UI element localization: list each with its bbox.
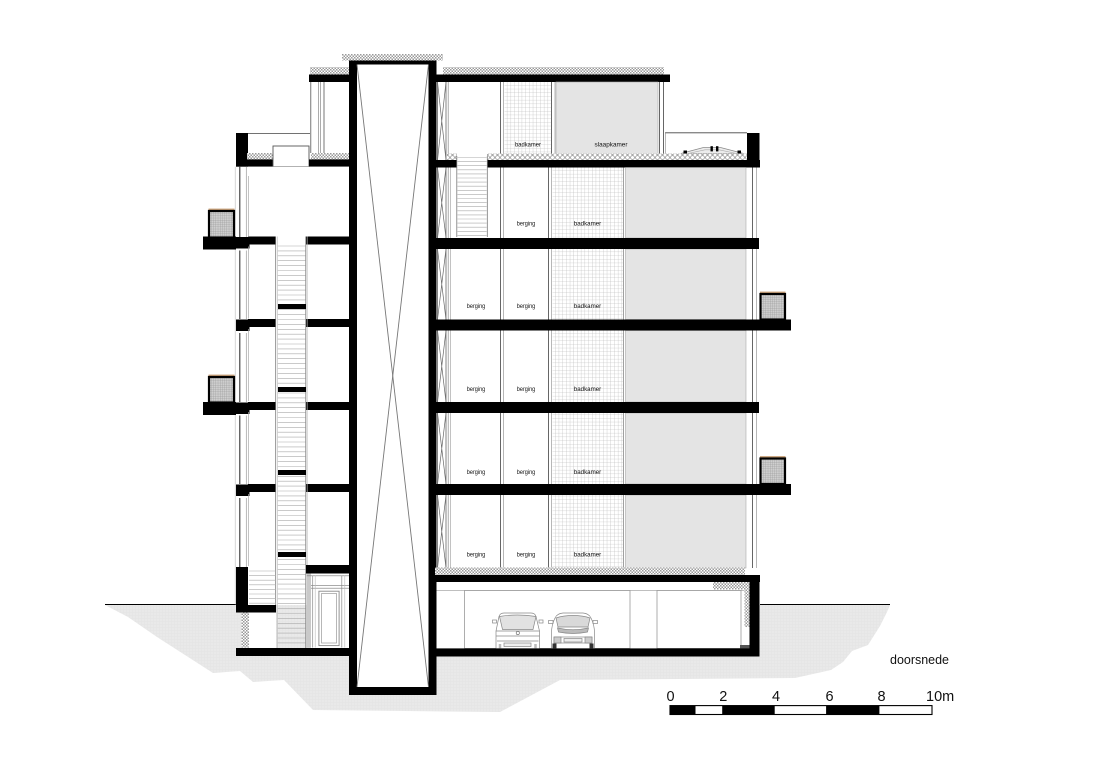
svg-text:badkamer: badkamer xyxy=(574,221,602,228)
svg-text:4: 4 xyxy=(772,689,780,705)
svg-text:badkamer: badkamer xyxy=(574,469,602,476)
svg-text:10m: 10m xyxy=(926,689,954,705)
svg-text:8: 8 xyxy=(877,689,885,705)
svg-text:2: 2 xyxy=(719,689,727,705)
svg-text:berging: berging xyxy=(517,386,536,393)
svg-text:berging: berging xyxy=(517,303,536,310)
svg-text:berging: berging xyxy=(467,552,486,559)
svg-text:berging: berging xyxy=(467,303,486,310)
svg-text:0: 0 xyxy=(666,689,674,705)
svg-text:berging: berging xyxy=(517,469,536,476)
svg-text:doorsnede: doorsnede xyxy=(890,652,949,667)
svg-text:slaapkamer: slaapkamer xyxy=(595,141,628,148)
svg-text:badkamer: badkamer xyxy=(515,141,541,148)
svg-text:badkamer: badkamer xyxy=(574,386,602,393)
svg-text:berging: berging xyxy=(517,552,536,559)
svg-text:berging: berging xyxy=(467,469,486,476)
svg-text:berging: berging xyxy=(467,386,486,393)
svg-text:berging: berging xyxy=(517,221,536,228)
svg-text:6: 6 xyxy=(825,689,833,705)
svg-text:badkamer: badkamer xyxy=(574,552,602,559)
svg-text:badkamer: badkamer xyxy=(574,303,602,310)
